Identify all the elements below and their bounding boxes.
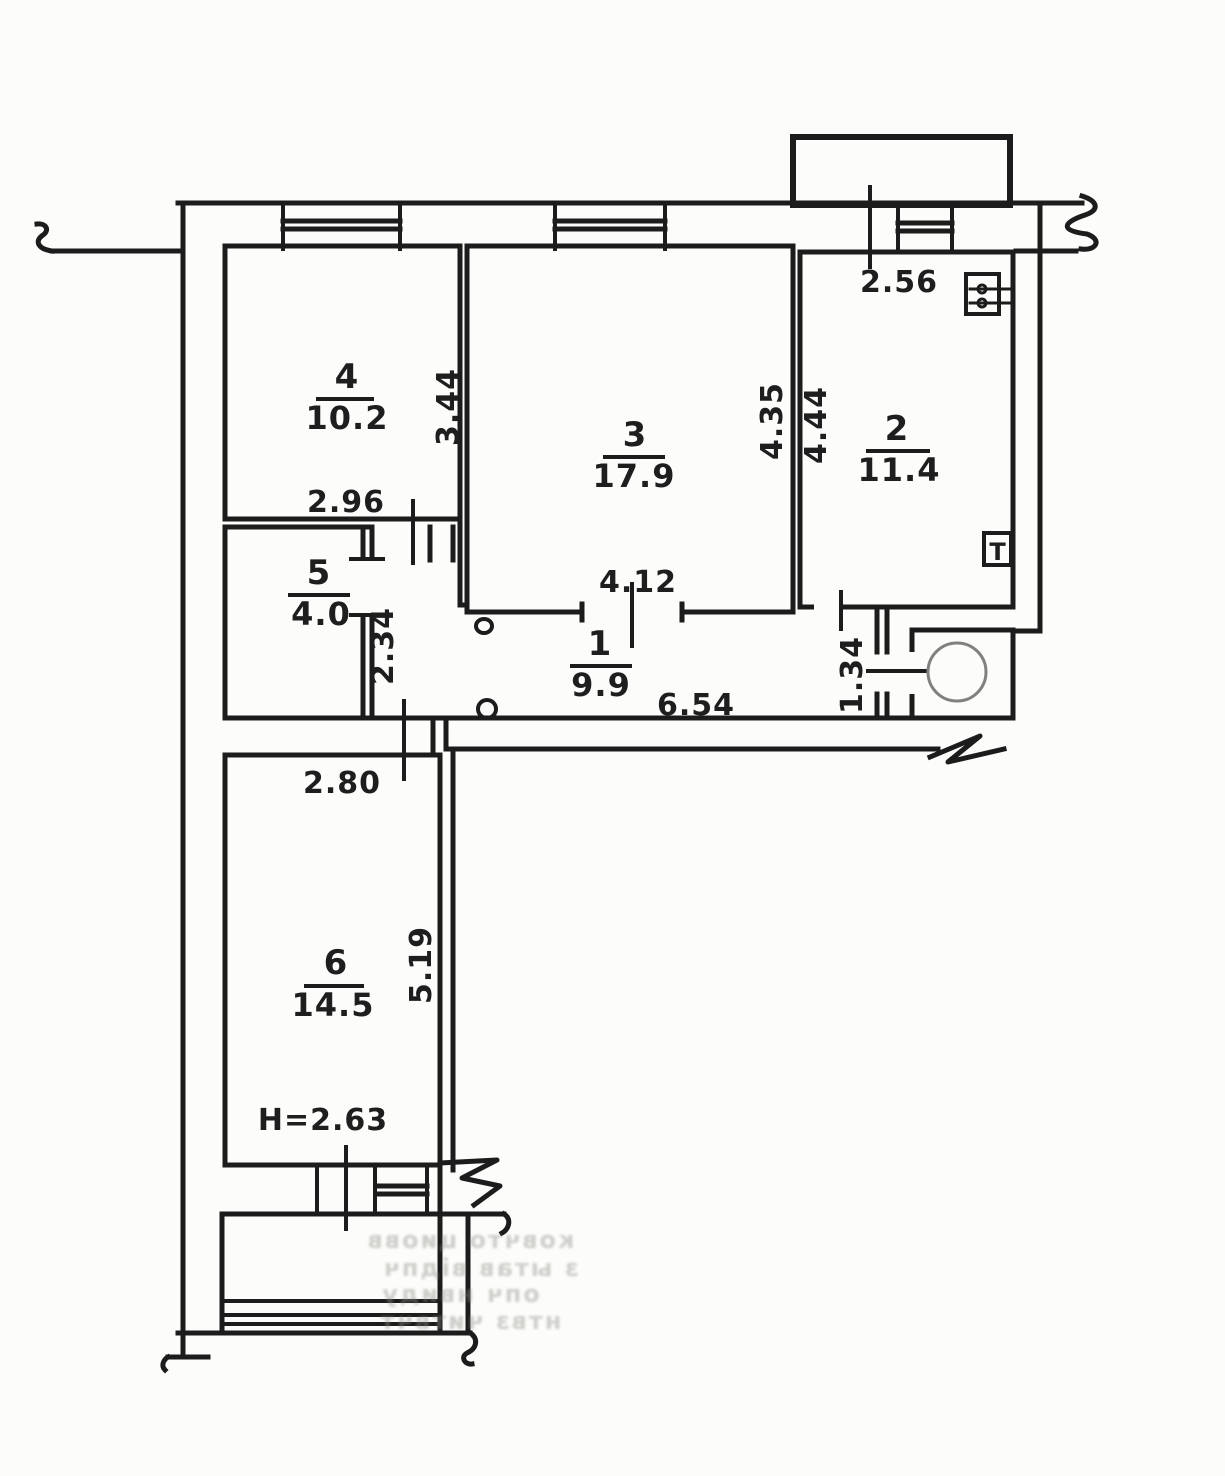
ghost-text-line: ковчто циовв — [366, 1226, 575, 1254]
window-room6-balcony — [317, 1165, 427, 1211]
toilet-bowl-circle — [928, 643, 986, 701]
fixture-symbols: T — [476, 274, 1011, 718]
room-outlines — [222, 137, 1013, 1333]
ceiling-height-note: H=2.63 — [258, 1103, 388, 1138]
room-1-number: 1 — [588, 624, 613, 664]
room-5-number: 5 — [307, 553, 332, 593]
bleedthrough-artifact: ковчто циовв з ытав відпч опч нвиду нтвз… — [366, 1226, 579, 1335]
room-4-label: 4 10.2 — [306, 357, 389, 437]
ghost-text-line: опч нвиду — [380, 1280, 540, 1308]
room-4-number: 4 — [335, 357, 360, 397]
room-4-area: 10.2 — [306, 399, 389, 437]
break-left-stub — [37, 224, 52, 251]
dim-5-19: 5.19 — [404, 926, 439, 1004]
room-1-label: 1 9.9 — [571, 624, 631, 704]
floor-plan-canvas: T 1 9.9 2 11.4 3 17.9 4 10.2 5 — [0, 0, 1225, 1476]
dim-2-34: 2.34 — [366, 607, 401, 685]
room-6-label: 6 14.5 — [292, 943, 375, 1024]
scanned-floor-plan-sheet: T 1 9.9 2 11.4 3 17.9 4 10.2 5 — [0, 0, 1225, 1476]
hook-left-foot — [163, 1357, 168, 1370]
room-6-number: 6 — [324, 943, 349, 983]
t-fixture-label: T — [989, 538, 1006, 566]
room-5-area: 4.0 — [291, 595, 351, 633]
electrical-panel-icon — [966, 274, 1010, 314]
exterior-walls — [52, 203, 1082, 1357]
dim-3-44: 3.44 — [431, 368, 466, 446]
ghost-text-line: з ытав відпч — [381, 1254, 579, 1282]
corridor-circle-2 — [478, 700, 496, 718]
room-2-number: 2 — [885, 409, 910, 449]
break-room6-wall — [440, 1160, 500, 1205]
dim-1-34: 1.34 — [835, 636, 870, 714]
break-mid-right — [930, 736, 1004, 762]
window-room2-balcony — [898, 207, 952, 251]
t-fixture-icon: T — [984, 533, 1011, 566]
dim-6-54: 6.54 — [657, 688, 735, 723]
balcony-top-outline — [793, 137, 1010, 205]
corridor-circle-1 — [476, 619, 492, 633]
dim-2-96: 2.96 — [307, 485, 385, 520]
window-top-1 — [283, 205, 400, 249]
room-6-area: 14.5 — [292, 986, 375, 1024]
window-top-2 — [555, 205, 665, 249]
break-bottom-right — [464, 1332, 476, 1364]
dim-4-44: 4.44 — [799, 386, 834, 464]
room-3-area: 17.9 — [593, 457, 676, 495]
room-1-area: 9.9 — [571, 666, 631, 704]
room-3-label: 3 17.9 — [593, 415, 676, 495]
dim-2-56: 2.56 — [860, 265, 938, 300]
dim-2-80: 2.80 — [303, 766, 381, 801]
ghost-text-line: нтвз читвчт — [379, 1307, 562, 1335]
wall-break-marks — [37, 196, 1096, 1370]
dim-4-35: 4.35 — [755, 382, 790, 460]
dim-4-12: 4.12 — [599, 565, 677, 600]
room-2-area: 11.4 — [858, 451, 941, 489]
room-3-number: 3 — [623, 415, 648, 455]
room-2-label: 2 11.4 — [858, 409, 941, 489]
room-5-label: 5 4.0 — [290, 553, 351, 633]
